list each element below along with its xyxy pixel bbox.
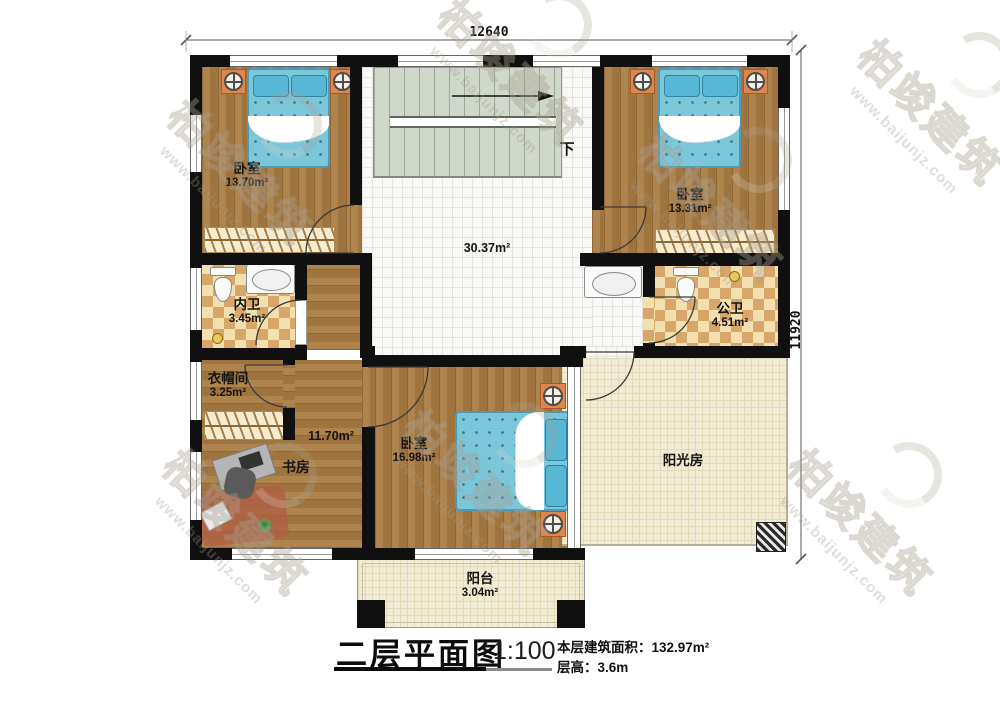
sink-counter <box>584 266 642 298</box>
window <box>190 268 202 330</box>
wardrobe <box>204 227 335 253</box>
bath-public-floor <box>643 266 778 346</box>
room-name: 衣帽间 <box>208 371 249 387</box>
nightstand <box>743 69 768 94</box>
room-label-hall-area: 30.37m² <box>464 241 511 256</box>
wall <box>360 253 372 358</box>
pillow <box>291 75 327 97</box>
room-area: 4.51m² <box>712 317 748 331</box>
dimension-right: 11920 <box>789 300 805 360</box>
double-bed <box>658 68 741 168</box>
floor-area-text: 本层建筑面积：132.97m² <box>557 638 709 658</box>
lamp-icon <box>746 72 765 91</box>
door-opening <box>592 210 604 253</box>
nightstand <box>221 69 246 94</box>
room-area: 3.25m² <box>208 387 249 401</box>
room-name: 书房 <box>282 459 310 476</box>
room-name: 内卫 <box>229 297 265 313</box>
title-underline-extension <box>486 668 552 671</box>
watermark-brand: 柏竣建筑 <box>776 435 949 608</box>
room-area: 3.45m² <box>229 313 265 327</box>
wall <box>373 355 583 367</box>
room-area: 11.70m² <box>308 429 354 444</box>
window <box>190 362 202 420</box>
floor-plan-canvas: 卧室 13.70m² 内卫 3.45m² 衣帽间 3.25m² 11.70m² … <box>0 0 1000 706</box>
stair-down-label: 下 <box>559 141 574 159</box>
window <box>652 55 747 67</box>
sunroom-floor <box>562 358 788 546</box>
pillow <box>253 75 289 97</box>
pillow <box>545 465 567 507</box>
pillow <box>702 75 738 97</box>
pillow <box>664 75 700 97</box>
sunroom-glass-wall <box>567 367 581 548</box>
stair-landing-edge <box>373 176 562 178</box>
nightstand <box>630 69 655 94</box>
room-label-sunroom: 阳光房 <box>663 453 704 469</box>
room-name: 阳光房 <box>663 453 704 469</box>
room-area: 30.37m² <box>464 241 511 256</box>
room-area: 13.70m² <box>226 177 269 191</box>
lamp-icon <box>224 72 243 91</box>
dimension-top: 12640 <box>459 25 519 40</box>
lamp-icon <box>633 72 652 91</box>
watermark: 柏竣建筑 www.baijunjz.com <box>799 0 1000 245</box>
room-label-bedroom-tl: 卧室 13.70m² <box>226 161 269 190</box>
room-name: 公卫 <box>712 301 748 317</box>
watermark-logo-icon <box>869 435 950 516</box>
wardrobe <box>204 411 284 440</box>
sunroom-corner-column <box>756 522 786 552</box>
plant-icon <box>258 519 271 532</box>
window <box>398 55 483 67</box>
room-label-bedroom-bottom: 卧室 16.98m² <box>393 436 436 465</box>
window <box>533 55 600 67</box>
room-area: 3.04m² <box>462 587 498 601</box>
watermark-url: www.baijunjz.com <box>846 83 961 198</box>
wall <box>202 253 362 265</box>
balcony-sliding-door <box>415 548 533 560</box>
corridor-floor <box>307 263 360 350</box>
room-label-study-area: 11.70m² <box>308 429 354 444</box>
drawing-scale: 1:100 <box>493 637 556 666</box>
pull-light-icon <box>212 333 223 344</box>
room-name: 卧室 <box>669 187 712 203</box>
window <box>778 108 790 210</box>
room-label-study: 书房 <box>282 459 310 476</box>
double-bed <box>455 411 570 511</box>
floor-height-text: 层高：3.6m <box>557 658 709 678</box>
wall <box>190 348 307 360</box>
pillow <box>545 419 567 461</box>
window <box>190 115 202 172</box>
room-label-cloakroom: 衣帽间 3.25m² <box>208 371 249 400</box>
sink-basin-icon <box>252 269 291 291</box>
toilet-tank-icon <box>673 267 699 276</box>
sink-counter <box>246 264 295 294</box>
room-area: 13.31m² <box>669 203 712 217</box>
pull-light-icon <box>729 271 740 282</box>
door-opening <box>362 367 375 427</box>
lamp-icon <box>543 386 563 406</box>
room-area: 16.98m² <box>393 452 436 466</box>
room-label-bath-inner: 内卫 3.45m² <box>229 297 265 326</box>
room-label-bath-public: 公卫 4.51m² <box>712 301 748 330</box>
toilet-tank-icon <box>210 267 236 276</box>
room-name: 卧室 <box>393 436 436 452</box>
nightstand <box>540 383 566 409</box>
bed-sheet <box>248 116 329 143</box>
balcony-pillar <box>357 600 385 628</box>
window <box>230 55 337 67</box>
balcony-pillar <box>557 600 585 628</box>
door-opening <box>643 297 655 343</box>
door-opening <box>586 346 634 358</box>
sink-basin-icon <box>592 272 636 296</box>
double-bed <box>247 68 330 168</box>
window <box>190 452 202 520</box>
door-opening <box>350 205 362 253</box>
room-name: 卧室 <box>226 161 269 177</box>
lamp-icon <box>543 514 563 534</box>
bed-sheet <box>659 116 740 143</box>
bed-sheet <box>515 412 544 510</box>
wall <box>580 253 790 266</box>
door-leaf <box>295 300 307 345</box>
room-label-bedroom-tr: 卧室 13.31m² <box>669 187 712 216</box>
watermark-logo-icon <box>939 25 1000 106</box>
watermark-url: www.baijunjz.com <box>776 493 891 608</box>
title-underline <box>334 667 486 671</box>
stair-handrail <box>390 116 556 128</box>
room-label-balcony: 阳台 3.04m² <box>462 571 498 600</box>
room-name: 阳台 <box>462 571 498 587</box>
window <box>232 548 332 560</box>
wardrobe <box>655 229 775 254</box>
nightstand <box>540 511 566 537</box>
watermark-brand: 柏竣建筑 <box>846 25 1000 198</box>
door-opening <box>283 365 295 408</box>
title-info-block: 本层建筑面积：132.97m² 层高：3.6m <box>557 638 709 678</box>
